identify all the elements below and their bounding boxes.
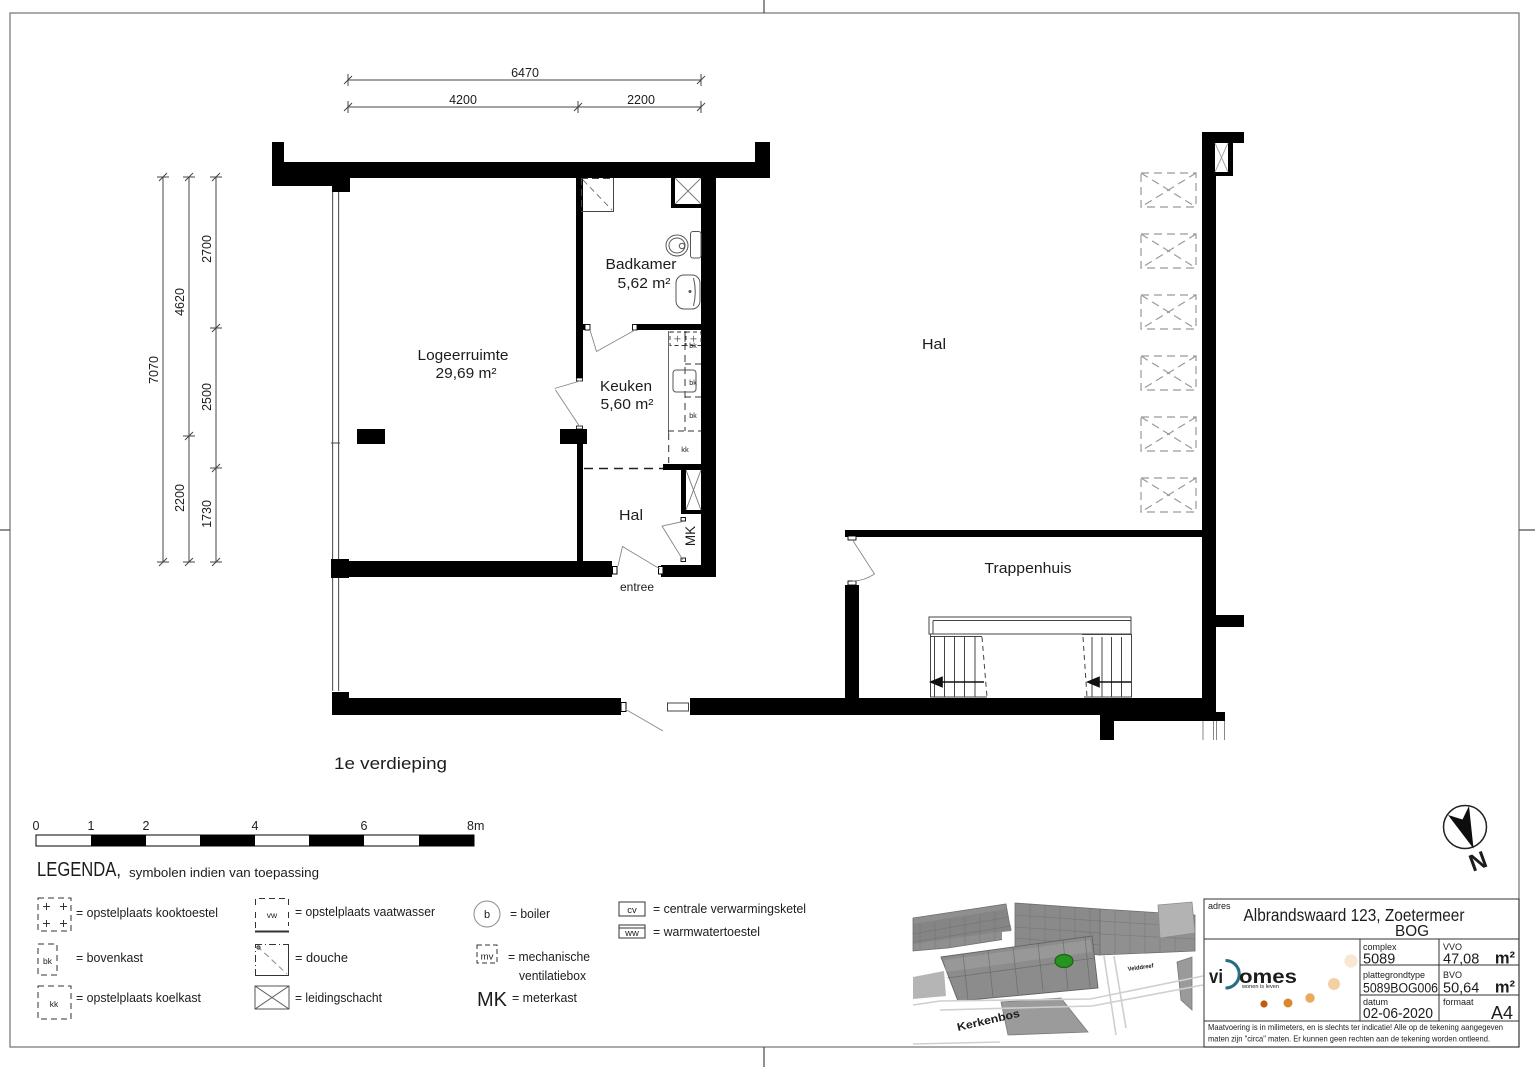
svg-text:5,62 m²: 5,62 m² [618, 276, 671, 292]
svg-text:entree: entree [620, 580, 654, 594]
svg-text:LEGENDA,: LEGENDA, [37, 859, 121, 881]
svg-text:= leidingschacht: = leidingschacht [295, 991, 383, 1005]
svg-text:1e verdieping: 1e verdieping [334, 754, 447, 773]
svg-text:= opstelplaats vaatwasser: = opstelplaats vaatwasser [295, 905, 435, 919]
svg-text:4: 4 [252, 819, 259, 833]
svg-text:2200: 2200 [627, 93, 655, 107]
svg-text:cv: cv [627, 905, 637, 916]
svg-text:50,64: 50,64 [1443, 981, 1479, 997]
svg-text:8m: 8m [467, 819, 484, 833]
svg-text:2500: 2500 [200, 383, 214, 411]
svg-text:m²: m² [1495, 979, 1516, 997]
svg-text:BVO: BVO [1443, 970, 1462, 980]
svg-text:plattegrondtype: plattegrondtype [1363, 970, 1425, 980]
svg-text:mv: mv [481, 952, 494, 963]
svg-text:= centrale verwarmingsketel: = centrale verwarmingsketel [653, 902, 806, 916]
svg-text:adres: adres [1208, 901, 1231, 911]
svg-text:ventilatiebox: ventilatiebox [519, 969, 587, 983]
svg-text:VVO: VVO [1443, 942, 1462, 952]
svg-text:29,69 m²: 29,69 m² [436, 366, 497, 382]
svg-text:= opstelplaats koelkast: = opstelplaats koelkast [76, 991, 202, 1005]
svg-text:vw: vw [267, 910, 278, 920]
svg-text:= meterkast: = meterkast [512, 991, 578, 1005]
svg-text:Badkamer: Badkamer [606, 257, 677, 273]
svg-text:ww: ww [624, 928, 639, 939]
svg-text:kk: kk [681, 445, 689, 454]
svg-text:Keuken: Keuken [600, 379, 652, 395]
svg-text:bk: bk [689, 413, 697, 420]
svg-text:5,60 m²: 5,60 m² [601, 397, 654, 413]
svg-text:2700: 2700 [200, 235, 214, 263]
svg-text:02-06-2020: 02-06-2020 [1363, 1006, 1433, 1022]
svg-text:b: b [484, 909, 490, 921]
svg-text:= opstelplaats kooktoestel: = opstelplaats kooktoestel [76, 906, 218, 920]
svg-text:4620: 4620 [173, 288, 187, 316]
svg-text:= mechanische: = mechanische [508, 950, 590, 964]
svg-text:= bovenkast: = bovenkast [76, 951, 144, 965]
svg-text:bk: bk [689, 380, 697, 387]
svg-text:2200: 2200 [173, 484, 187, 512]
svg-text:formaat: formaat [1443, 997, 1474, 1007]
svg-text:Maatvoering is in milimeters,: Maatvoering is in milimeters, en is slec… [1208, 1022, 1503, 1032]
svg-text:1730: 1730 [200, 500, 214, 528]
svg-text:6: 6 [361, 819, 368, 833]
svg-text:6470: 6470 [511, 66, 539, 80]
svg-text:7070: 7070 [147, 356, 161, 384]
svg-text:5089: 5089 [1363, 952, 1395, 968]
svg-text:4200: 4200 [449, 93, 477, 107]
svg-text:Albrandswaard 123, Zoetermeer: Albrandswaard 123, Zoetermeer [1244, 905, 1465, 925]
svg-text:wonen is leven: wonen is leven [1241, 984, 1279, 990]
svg-text:Hal: Hal [922, 337, 946, 353]
svg-text:Trappenhuis: Trappenhuis [985, 561, 1072, 577]
svg-text:Logeerruimte: Logeerruimte [418, 348, 509, 364]
svg-text:5089BOG006: 5089BOG006 [1363, 981, 1438, 996]
svg-text:47,08: 47,08 [1443, 952, 1479, 968]
svg-text:= warmwatertoestel: = warmwatertoestel [653, 925, 760, 939]
svg-text:A4: A4 [1491, 1003, 1513, 1023]
svg-text:bk: bk [689, 343, 697, 350]
svg-text:2: 2 [143, 819, 150, 833]
svg-text:maten zijn "circa" maten. Er k: maten zijn "circa" maten. Er kunnen geen… [1208, 1034, 1490, 1044]
svg-text:0: 0 [33, 819, 40, 833]
svg-text:= douche: = douche [295, 951, 348, 965]
svg-text:MK: MK [477, 989, 508, 1011]
svg-text:symbolen indien van toepassing: symbolen indien van toepassing [129, 865, 319, 880]
svg-text:m²: m² [1495, 950, 1516, 968]
svg-text:vi: vi [1209, 967, 1223, 988]
svg-text:BOG: BOG [1395, 923, 1429, 940]
svg-text:bk: bk [43, 956, 53, 966]
svg-text:MK: MK [683, 526, 698, 546]
svg-text:Hal: Hal [619, 508, 643, 524]
svg-text:= boiler: = boiler [510, 907, 550, 921]
svg-text:1: 1 [88, 819, 95, 833]
svg-text:complex: complex [1363, 942, 1397, 952]
svg-text:kk: kk [50, 999, 59, 1009]
